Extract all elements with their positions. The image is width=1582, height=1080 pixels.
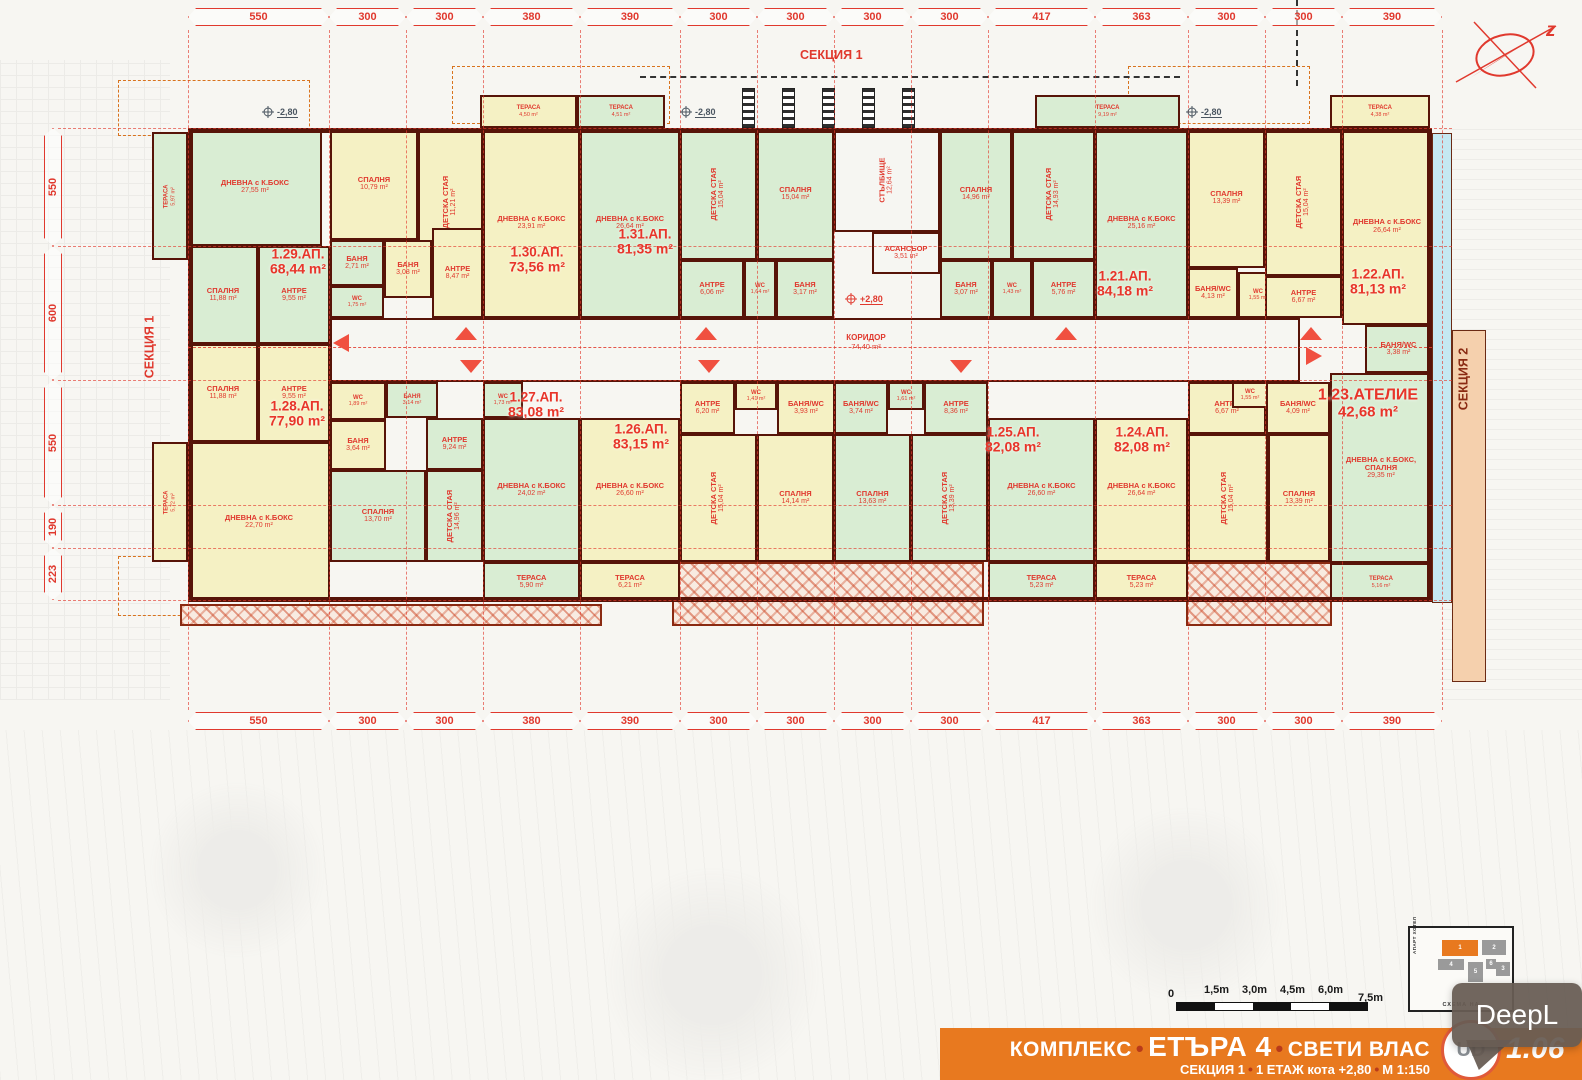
scale-bar-segments [1176, 1002, 1368, 1011]
room-ter597: ТЕРАСА5,97 m² [152, 132, 188, 260]
elevation-marker-minus: -2,80 [1186, 106, 1222, 118]
dimension-value: 417 [988, 712, 1095, 730]
dimension-chain-vertical: 550600550190223 [44, 128, 62, 600]
keyplan-building-2: 2 [1482, 940, 1506, 955]
room-r28ter: ТЕРАСА5,72 m² [152, 442, 188, 562]
room-r28wc: WC1,89 m² [330, 382, 386, 420]
dimension-value: 300 [1265, 712, 1342, 730]
room-r31ter: ТЕРАСА4,51 m² [577, 95, 665, 128]
entrance-canopy-column [822, 88, 835, 128]
project-title: КОМПЛЕКС•ЕТЪРА 4•СВЕТИ ВЛАС СЕКЦИЯ 1•1 Е… [1010, 1031, 1430, 1077]
room-r25banyawc: БАНЯ/WC3,74 m² [834, 382, 888, 434]
apartment-label-a30: 1.30.АП.73,56 m² [509, 246, 565, 275]
exterior-terrace-hatch [672, 562, 984, 626]
dimension-value: 223 [44, 548, 62, 600]
room-r21detska: ДЕТСКА СТАЯ14,93 m² [1012, 128, 1095, 260]
floorplan-sheet: { "sections": {"top": "СЕКЦИЯ 1", "left"… [0, 0, 1582, 1080]
room-r31wc: WC1,64 m² [744, 260, 776, 318]
room-r29banya: БАНЯ2,71 m² [330, 240, 384, 286]
elevation-marker-plus: +2,80 [845, 293, 883, 305]
room-r28dnev: ДНЕВНА с К.БОКС22,70 m² [188, 442, 330, 602]
dimension-value: 390 [1342, 8, 1442, 26]
corridor-direction-arrow [1300, 327, 1322, 340]
room-lift: АСАНСЬОР3,51 m² [872, 232, 940, 274]
north-arrow-icon: z [1448, 10, 1568, 96]
dimension-value: 550 [188, 8, 329, 26]
room-r25antre: АНТРЕ8,36 m² [924, 382, 988, 434]
scale-label: 6,0m [1318, 984, 1343, 996]
room-r31banya: БАНЯ3,17 m² [776, 260, 834, 318]
room-stair: СТЪЛБИЩЕ12,64 m² [834, 128, 940, 232]
apartment-label-a31: 1.31.АП.81,35 m² [617, 228, 673, 257]
room-r26ter: ТЕРАСА6,21 m² [580, 562, 680, 602]
room-r22ter: ТЕРАСА4,38 m² [1330, 95, 1430, 128]
apartment-label-a27: 1.27.АП.83,08 m² [508, 391, 564, 420]
room-r26wc: WC1,41 m² [735, 382, 777, 410]
sheet-floor: 1 ЕТАЖ кота +2,80 [1256, 1062, 1371, 1077]
room-r21span: СПАЛНЯ14,96 m² [940, 128, 1012, 260]
dimension-value: 390 [1342, 712, 1442, 730]
dimension-value: 190 [44, 505, 62, 548]
room-r29span: СПАЛНЯ11,88 m² [188, 246, 258, 344]
dimension-value: 417 [988, 8, 1095, 26]
room-r21banya: БАНЯ3,07 m² [940, 260, 992, 318]
section1-left-label: СЕКЦИЯ 1 [142, 316, 156, 379]
dimension-value: 300 [406, 712, 483, 730]
section2-right-label: СЕКЦИЯ 2 [1456, 348, 1470, 411]
scale-label: 0 [1168, 988, 1174, 1000]
room-r25span: СПАЛНЯ13,63 m² [834, 434, 911, 562]
corridor-direction-arrow [1055, 327, 1077, 340]
keyplan-building-1: 1 [1442, 940, 1478, 956]
elevation-marker-minus: -2,80 [680, 106, 716, 118]
room-r27span: СПАЛНЯ13,70 m² [330, 470, 426, 562]
dimension-chain-horizontal: 5503003003803903003003003004173633003003… [188, 712, 1442, 730]
room-r27ter: ТЕРАСА5,90 m² [483, 562, 580, 602]
room-r22banyawc: БАНЯ/WC4,13 m² [1188, 268, 1238, 318]
room-r26banyawc: БАНЯ/WC3,93 m² [777, 382, 835, 434]
room-r24span: СПАЛНЯ13,39 m² [1268, 434, 1330, 562]
complex-word: КОМПЛЕКС [1010, 1038, 1132, 1061]
room-r23banyawc: БАНЯ/WC3,38 m² [1365, 325, 1432, 373]
dimension-chain-horizontal: 5503003003803903003003003004173633003003… [188, 8, 1442, 26]
room-r28banya: БАНЯ3,64 m² [330, 420, 386, 470]
room-r22detska: ДЕТСКА СТАЯ15,04 m² [1265, 128, 1342, 276]
apartment-label-a25: 1.25.АП.82,08 m² [985, 426, 1041, 455]
apartment-label-a28: 1.28.АП.77,90 m² [269, 400, 325, 429]
room-r29wc: WC1,75 m² [330, 286, 384, 318]
corridor-direction-arrow [460, 360, 482, 373]
keyplan-building-4: 4 [1438, 959, 1464, 970]
sheet-scale: М 1:150 [1382, 1062, 1430, 1077]
section1-top-label: СЕКЦИЯ 1 [800, 48, 863, 62]
dimension-value: 550 [44, 380, 62, 505]
apartment-label-a26: 1.26.АП.83,15 m² [613, 423, 669, 452]
dimension-value: 300 [1188, 8, 1265, 26]
room-r31antre: АНТРЕ6,06 m² [680, 260, 744, 318]
dimension-value: 550 [188, 712, 329, 730]
dimension-value: 300 [834, 8, 911, 26]
room-r21wc: WC1,43 m² [992, 260, 1032, 318]
room-r29dnev: ДНЕВНА с К.БОКС27,55 m² [188, 128, 322, 246]
corridor-direction-arrow [695, 327, 717, 340]
corridor-label: КОРИДОР 74,40 m² [846, 333, 885, 351]
room-r25detska: ДЕТСКА СТАЯ13,39 m² [911, 434, 988, 562]
sheet-section: СЕКЦИЯ 1 [1180, 1062, 1245, 1077]
apartment-label-a23: 1.23.АТЕЛИЕ42,68 m² [1318, 388, 1418, 421]
dimension-value: 363 [1095, 712, 1188, 730]
dimension-value: 300 [329, 8, 406, 26]
dimension-value: 550 [44, 128, 62, 246]
room-r22span: СПАЛНЯ13,39 m² [1188, 128, 1265, 268]
corridor-direction-arrow [455, 327, 477, 340]
corridor-direction-arrow [698, 360, 720, 373]
room-r27dnev: ДНЕВНА с К.БОКС24,02 m² [483, 418, 580, 562]
room-r26antre: АНТРЕ6,20 m² [680, 382, 735, 434]
room-r30ter: ТЕРАСА4,50 m² [480, 95, 577, 128]
dimension-value: 600 [44, 246, 62, 380]
svg-text:z: z [1545, 20, 1556, 41]
entrance-canopy-column [862, 88, 875, 128]
apartment-label-a29: 1.29.АП.68,44 m² [270, 248, 326, 277]
dimension-value: 300 [911, 712, 988, 730]
dimension-value: 363 [1095, 8, 1188, 26]
room-r28span: СПАЛНЯ11,88 m² [188, 344, 258, 442]
dimension-value: 300 [834, 712, 911, 730]
entrance-canopy-column [902, 88, 915, 128]
deepl-button[interactable]: DeepL [1452, 983, 1582, 1047]
exterior-terrace-hatch [1186, 562, 1332, 626]
scale-label: 7,5m [1358, 992, 1383, 1004]
room-r23ter: ТЕРАСА5,16 m² [1330, 563, 1432, 602]
elevation-marker-minus: -2,80 [262, 106, 298, 118]
room-r25ter: ТЕРАСА5,23 m² [988, 562, 1095, 602]
dimension-value: 380 [483, 712, 580, 730]
dimension-value: 300 [911, 8, 988, 26]
keyplan-building-5: 5 [1468, 962, 1483, 982]
dimension-value: 300 [680, 712, 757, 730]
keyplan-hotel-label: АПАРТ ХОТЕЛ [1412, 917, 1417, 954]
apartment-label-a24: 1.24.АП.82,08 m² [1114, 426, 1170, 455]
room-r30dnev: ДНЕВНА с К.БОКС23,91 m² [483, 128, 580, 318]
room-r24ter: ТЕРАСА5,23 m² [1095, 562, 1188, 602]
room-r27banya: БАНЯ3,14 m² [386, 382, 438, 418]
city-name: СВЕТИ ВЛАС [1288, 1038, 1430, 1061]
dimension-value: 380 [483, 8, 580, 26]
room-r26span: СПАЛНЯ14,14 m² [757, 434, 834, 562]
room-r21ter: ТЕРАСА9,19 m² [1035, 95, 1180, 128]
entrance-canopy-column [782, 88, 795, 128]
room-r24detska: ДЕТСКА СТАЯ15,04 m² [1188, 434, 1268, 562]
room-r26detska: ДЕТСКА СТАЯ15,04 m² [680, 434, 757, 562]
dimension-value: 390 [580, 712, 680, 730]
corridor-direction-arrow [333, 334, 349, 352]
entrance-canopy-column [742, 88, 755, 128]
room-r31span: СПАЛНЯ15,04 m² [757, 128, 834, 260]
keyplan-building-3: 3 [1496, 962, 1510, 976]
corridor-direction-arrow [950, 360, 972, 373]
apartment-label-a21: 1.21.АП.84,18 m² [1097, 270, 1153, 299]
keyplan-building-6: 6 [1486, 959, 1496, 969]
corridor-direction-arrow [1306, 347, 1322, 365]
room-r30banya: БАНЯ3,08 m² [384, 240, 432, 298]
scale-label: 1,5m [1204, 984, 1229, 996]
room-r21antre: АНТРЕ5,76 m² [1032, 260, 1095, 318]
scale-bar: 01,5m3,0m4,5m6,0m7,5m [1168, 980, 1383, 1012]
room-r30span: СПАЛНЯ10,79 m² [330, 128, 418, 240]
room-r31dnev: ДНЕВНА с К.БОКС26,64 m² [580, 128, 680, 318]
dimension-value: 300 [1265, 8, 1342, 26]
room-r25wc: WC1,61 m² [888, 382, 924, 410]
room-r24wc: WC1,55 m² [1232, 382, 1268, 408]
room-r30antre: АНТРЕ8,47 m² [432, 228, 483, 318]
room-r31detska: ДЕТСКА СТАЯ15,04 m² [680, 128, 757, 260]
section2-stair-strip [1432, 133, 1452, 603]
dimension-value: 300 [329, 712, 406, 730]
room-r27antre: АНТРЕ9,24 m² [426, 418, 483, 470]
scale-label: 4,5m [1280, 984, 1305, 996]
room-r22antre: АНТРЕ6,67 m² [1265, 276, 1342, 318]
complex-name: ЕТЪРА 4 [1148, 1031, 1271, 1062]
exterior-terrace-hatch [180, 604, 602, 626]
room-r27detska: ДЕТСКА СТАЯ14,96 m² [426, 470, 483, 562]
dimension-value: 300 [757, 712, 834, 730]
apartment-label-a22: 1.22.АП.81,13 m² [1350, 268, 1406, 297]
dimension-value: 390 [580, 8, 680, 26]
dimension-value: 300 [757, 8, 834, 26]
scale-label: 3,0m [1242, 984, 1267, 996]
dimension-value: 300 [1188, 712, 1265, 730]
dimension-value: 300 [680, 8, 757, 26]
dimension-value: 300 [406, 8, 483, 26]
